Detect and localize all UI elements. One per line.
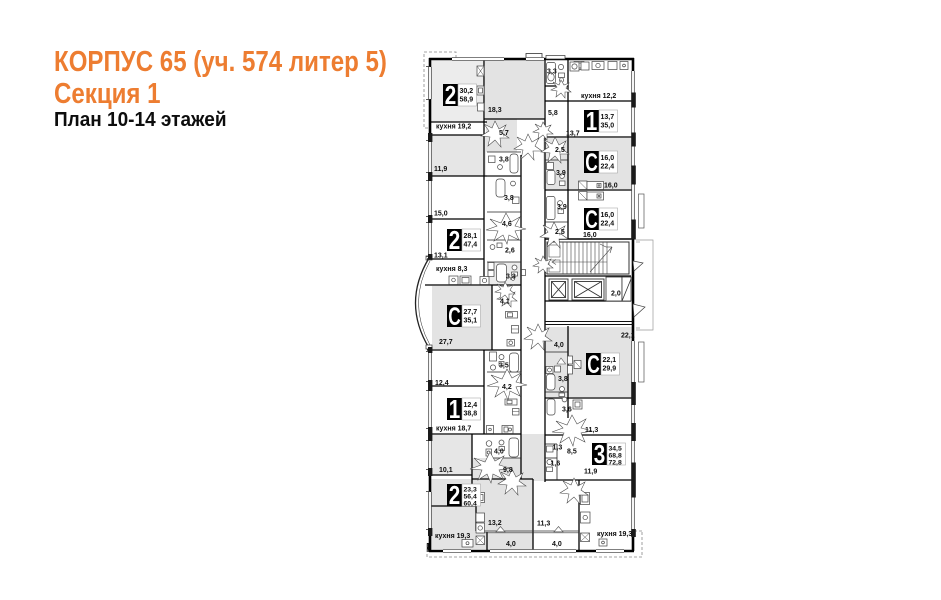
svg-text:28,1: 28,1 <box>464 233 478 240</box>
svg-text:4,6: 4,6 <box>502 221 512 228</box>
svg-text:13,7: 13,7 <box>566 131 580 138</box>
svg-text:16,0: 16,0 <box>601 155 615 162</box>
svg-text:2,0: 2,0 <box>611 291 621 298</box>
svg-text:3: 3 <box>594 439 606 469</box>
svg-text:11,3: 11,3 <box>585 427 598 434</box>
svg-text:27,7: 27,7 <box>439 339 453 346</box>
svg-text:С: С <box>587 351 600 379</box>
svg-text:12,4: 12,4 <box>435 380 449 387</box>
svg-text:58,9: 58,9 <box>460 97 474 104</box>
svg-text:кухня 18,7: кухня 18,7 <box>436 426 471 433</box>
svg-text:22,1: 22,1 <box>621 333 635 340</box>
svg-text:3,8: 3,8 <box>504 195 514 202</box>
svg-text:3,9: 3,9 <box>557 204 567 211</box>
svg-text:3,3: 3,3 <box>506 274 516 281</box>
svg-text:15,0: 15,0 <box>434 211 448 218</box>
svg-text:С: С <box>585 206 598 234</box>
svg-text:9,8: 9,8 <box>503 467 513 474</box>
svg-text:30,2: 30,2 <box>460 88 474 95</box>
svg-text:кухня 19,2: кухня 19,2 <box>436 124 471 131</box>
svg-text:56,4: 56,4 <box>464 494 477 501</box>
svg-text:4,1: 4,1 <box>500 299 510 306</box>
svg-text:3,3: 3,3 <box>547 69 557 76</box>
svg-text:68,8: 68,8 <box>609 453 622 460</box>
svg-text:2,5: 2,5 <box>555 229 565 236</box>
svg-text:кухня 19,3: кухня 19,3 <box>597 531 632 538</box>
svg-text:34,5: 34,5 <box>609 446 622 453</box>
svg-text:1: 1 <box>449 394 461 424</box>
svg-text:22,4: 22,4 <box>601 221 615 228</box>
svg-text:35,1: 35,1 <box>464 318 478 325</box>
svg-text:кухня 8,3: кухня 8,3 <box>436 266 467 273</box>
svg-text:23,3: 23,3 <box>464 487 477 494</box>
svg-text:4,0: 4,0 <box>506 541 516 548</box>
svg-text:13,1: 13,1 <box>434 253 448 260</box>
svg-text:2: 2 <box>449 480 461 510</box>
svg-text:47,4: 47,4 <box>464 242 478 249</box>
svg-text:38,8: 38,8 <box>464 411 478 418</box>
svg-text:1,3: 1,3 <box>553 445 563 452</box>
svg-text:3,6: 3,6 <box>562 407 572 414</box>
svg-text:29,9: 29,9 <box>603 366 617 373</box>
svg-text:18,3: 18,3 <box>488 107 502 114</box>
svg-text:11,9: 11,9 <box>584 469 597 476</box>
svg-text:3,9: 3,9 <box>556 170 566 177</box>
svg-text:12,4: 12,4 <box>464 402 478 409</box>
svg-text:16,0: 16,0 <box>604 183 618 190</box>
svg-text:11,3: 11,3 <box>537 521 550 528</box>
svg-text:60,4: 60,4 <box>464 501 477 508</box>
svg-text:4,0: 4,0 <box>554 342 564 349</box>
svg-text:3,8: 3,8 <box>499 157 509 164</box>
svg-text:2: 2 <box>449 225 461 255</box>
svg-text:5,7: 5,7 <box>499 130 509 137</box>
svg-text:С: С <box>585 149 598 177</box>
svg-text:4,2: 4,2 <box>502 384 512 391</box>
svg-text:2: 2 <box>445 80 457 110</box>
svg-text:4,0: 4,0 <box>494 449 504 456</box>
svg-text:3,8: 3,8 <box>558 376 568 383</box>
svg-text:1,6: 1,6 <box>551 461 561 468</box>
svg-text:8,5: 8,5 <box>567 449 577 456</box>
svg-text:кухня 12,2: кухня 12,2 <box>581 93 616 100</box>
svg-text:11,9: 11,9 <box>434 166 447 173</box>
svg-text:4,0: 4,0 <box>552 541 562 548</box>
svg-text:13,2: 13,2 <box>488 520 502 527</box>
svg-text:22,4: 22,4 <box>601 164 615 171</box>
svg-text:16,0: 16,0 <box>601 212 615 219</box>
svg-text:72,8: 72,8 <box>609 460 622 467</box>
svg-text:5,8: 5,8 <box>548 110 558 117</box>
svg-text:2,5: 2,5 <box>555 147 565 154</box>
svg-text:16,0: 16,0 <box>583 232 597 239</box>
svg-text:2,6: 2,6 <box>505 248 515 255</box>
svg-text:кухня 19,3: кухня 19,3 <box>435 533 470 540</box>
svg-text:35,0: 35,0 <box>601 123 615 130</box>
svg-text:1: 1 <box>586 106 598 136</box>
svg-text:10,1: 10,1 <box>439 467 453 474</box>
svg-text:С: С <box>448 303 461 331</box>
svg-text:27,7: 27,7 <box>464 309 478 316</box>
svg-text:3,5: 3,5 <box>499 363 509 370</box>
svg-text:22,1: 22,1 <box>603 357 617 364</box>
svg-text:13,7: 13,7 <box>601 114 615 121</box>
